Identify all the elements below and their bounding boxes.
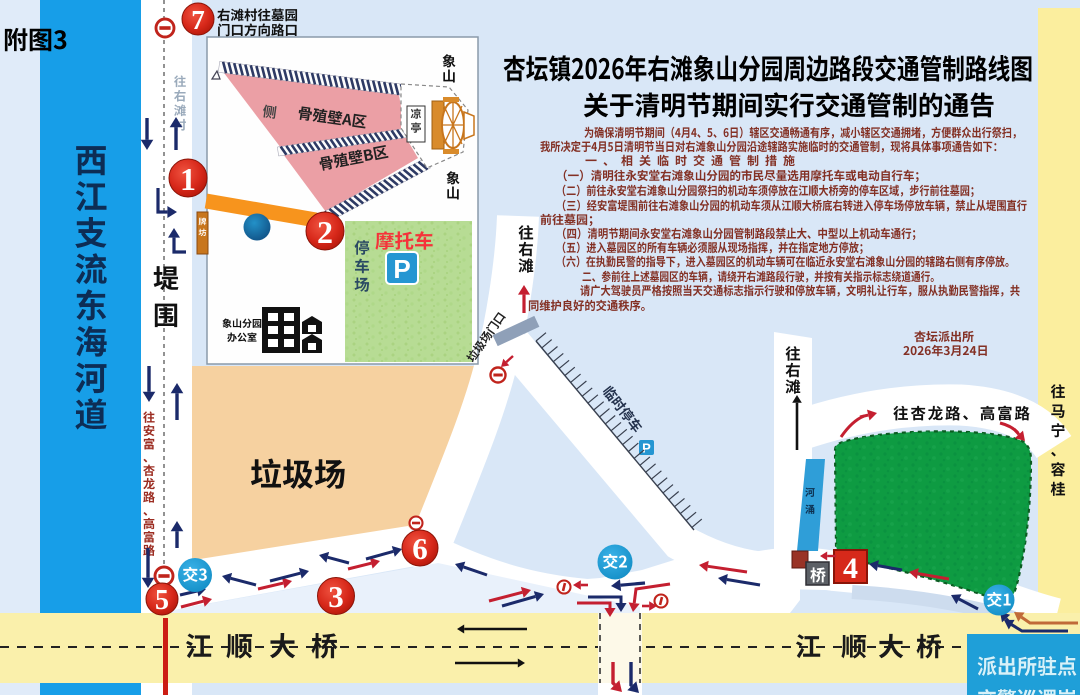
svg-text:4: 4 xyxy=(843,552,858,585)
svg-text:P: P xyxy=(393,254,410,284)
svg-text:1: 1 xyxy=(180,161,196,197)
svg-text:P: P xyxy=(642,441,651,456)
svg-text:2: 2 xyxy=(317,214,333,250)
svg-text:5: 5 xyxy=(155,585,169,616)
svg-text:7: 7 xyxy=(191,5,205,35)
svg-text:3: 3 xyxy=(328,579,344,614)
svg-text:6: 6 xyxy=(412,531,428,566)
